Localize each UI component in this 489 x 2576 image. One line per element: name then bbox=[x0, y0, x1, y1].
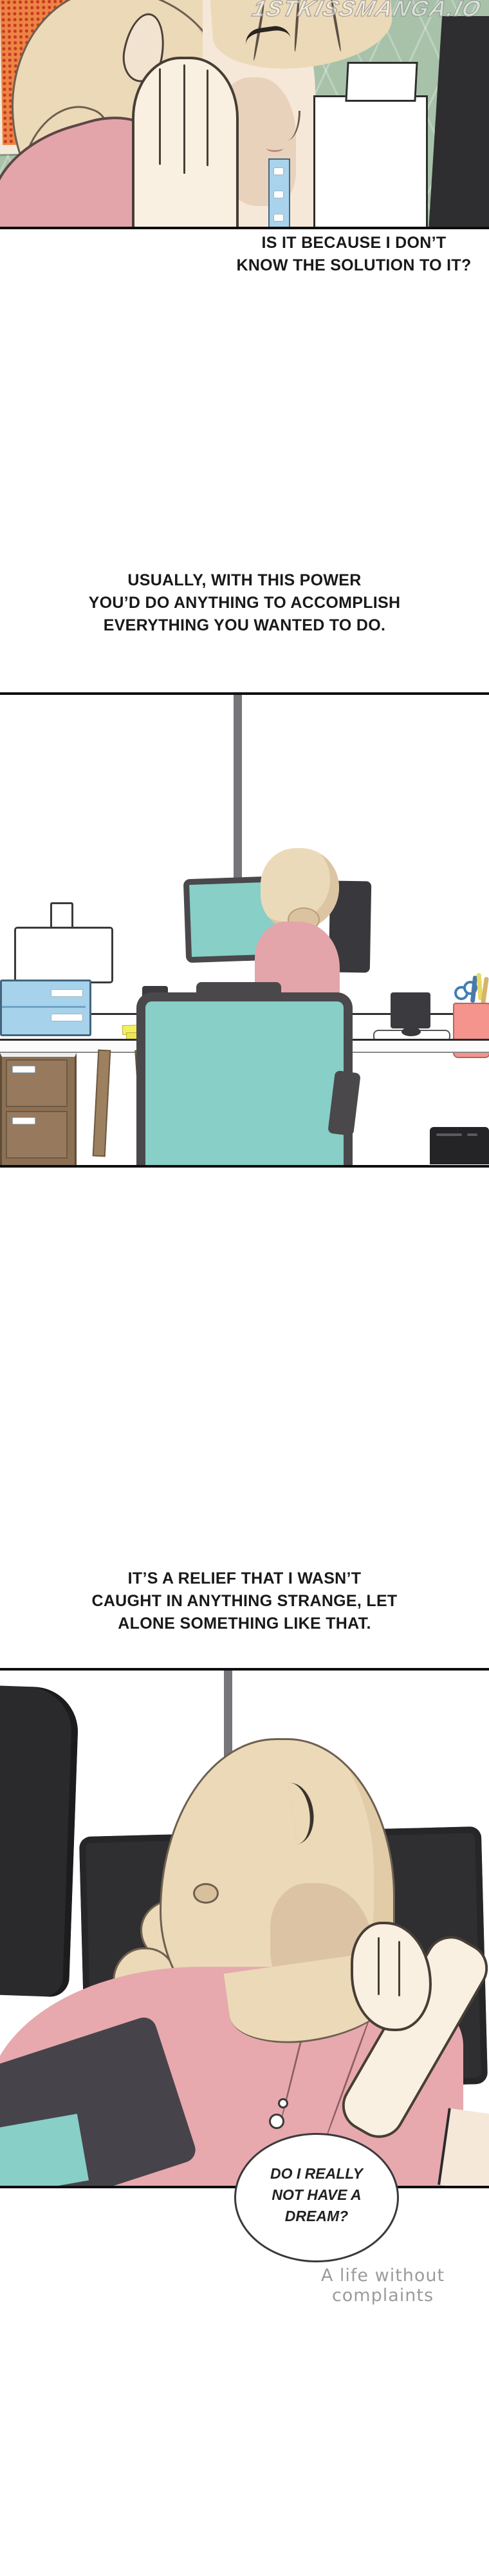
teal-chair-corner bbox=[0, 2114, 89, 2188]
narration-line: IS IT BECAUSE I DON’T bbox=[212, 232, 489, 254]
wood-drawer bbox=[6, 1059, 68, 1107]
thought-bubble-dot bbox=[269, 2114, 284, 2129]
character-hand bbox=[132, 57, 239, 229]
pc-tower bbox=[430, 1127, 489, 1164]
narration-line: CAUGHT IN ANYTHING STRANGE, LET bbox=[77, 1590, 412, 1613]
drawer-handle bbox=[12, 1117, 35, 1124]
wood-drawer bbox=[6, 1111, 68, 1159]
drawer-handle bbox=[51, 1014, 83, 1021]
finger-line bbox=[159, 68, 161, 165]
shelf-slot bbox=[273, 167, 284, 175]
narration-block-1: IS IT BECAUSE I DON’T KNOW THE SOLUTION … bbox=[212, 232, 489, 277]
finger-line bbox=[207, 70, 208, 166]
panel-closeup-slumped bbox=[0, 1668, 489, 2188]
wood-drawer-cabinet bbox=[0, 1053, 77, 1168]
narration-line: USUALLY, WITH THIS POWER bbox=[77, 569, 412, 592]
desk-paper-stack bbox=[313, 95, 428, 229]
shelf-slot bbox=[273, 214, 284, 222]
drawer-divider bbox=[2, 1006, 86, 1008]
bubble-line: DO I REALLY bbox=[236, 2163, 397, 2184]
blue-shelf-strip bbox=[268, 158, 290, 229]
drawer-handle bbox=[51, 989, 83, 997]
narration-line: EVERYTHING YOU WANTED TO DO. bbox=[77, 614, 412, 637]
thought-bubble-text: DO I REALLY NOT HAVE A DREAM? bbox=[236, 2163, 397, 2227]
bubble-line: DREAM? bbox=[236, 2206, 397, 2227]
hair-tie bbox=[193, 1883, 219, 1904]
narration-line: ALONE SOMETHING LIKE THAT. bbox=[77, 1613, 412, 1635]
thought-bubble-dot bbox=[278, 2098, 288, 2108]
narration-line: YOU’D DO ANYTHING TO ACCOMPLISH bbox=[77, 592, 412, 614]
webtoon-page: 1STKISSMANGA.IO IS IT BECAUSE I DON’T KN… bbox=[0, 0, 489, 2576]
narration-block-3: IT’S A RELIEF THAT I WASN’T CAUGHT IN AN… bbox=[77, 1567, 412, 1635]
blue-drawer-unit bbox=[0, 980, 91, 1036]
finger-line bbox=[183, 64, 185, 174]
partition-pole bbox=[234, 695, 242, 888]
printer bbox=[14, 927, 113, 983]
mouse bbox=[401, 1027, 421, 1036]
pencil bbox=[481, 977, 489, 1005]
episode-caption: A life without complaints bbox=[270, 2266, 489, 2306]
panel-closeup-thinking: 1STKISSMANGA.IO bbox=[0, 0, 489, 229]
thought-bubble: DO I REALLY NOT HAVE A DREAM? bbox=[234, 2133, 399, 2262]
pc-vent bbox=[436, 1133, 462, 1136]
site-watermark: 1STKISSMANGA.IO bbox=[250, 0, 489, 22]
desk-leg bbox=[93, 1050, 111, 1157]
bubble-line: NOT HAVE A bbox=[236, 2184, 397, 2206]
teal-chair-near bbox=[136, 992, 353, 1168]
desk-paper-small bbox=[345, 62, 418, 102]
narration-block-2: USUALLY, WITH THIS POWER YOU’D DO ANYTHI… bbox=[77, 569, 412, 637]
pc-vent bbox=[467, 1133, 477, 1136]
desk-speaker bbox=[391, 992, 430, 1028]
narration-line: IT’S A RELIEF THAT I WASN’T bbox=[77, 1567, 412, 1590]
narration-line: KNOW THE SOLUTION TO IT? bbox=[212, 254, 489, 277]
finger-line bbox=[398, 1941, 400, 1996]
drawer-handle bbox=[12, 1066, 35, 1073]
shelf-slot bbox=[273, 191, 284, 198]
panel-office-wide bbox=[0, 692, 489, 1168]
finger-line bbox=[378, 1937, 380, 1995]
black-chair-back bbox=[0, 1685, 79, 1998]
character-lips bbox=[266, 144, 283, 152]
